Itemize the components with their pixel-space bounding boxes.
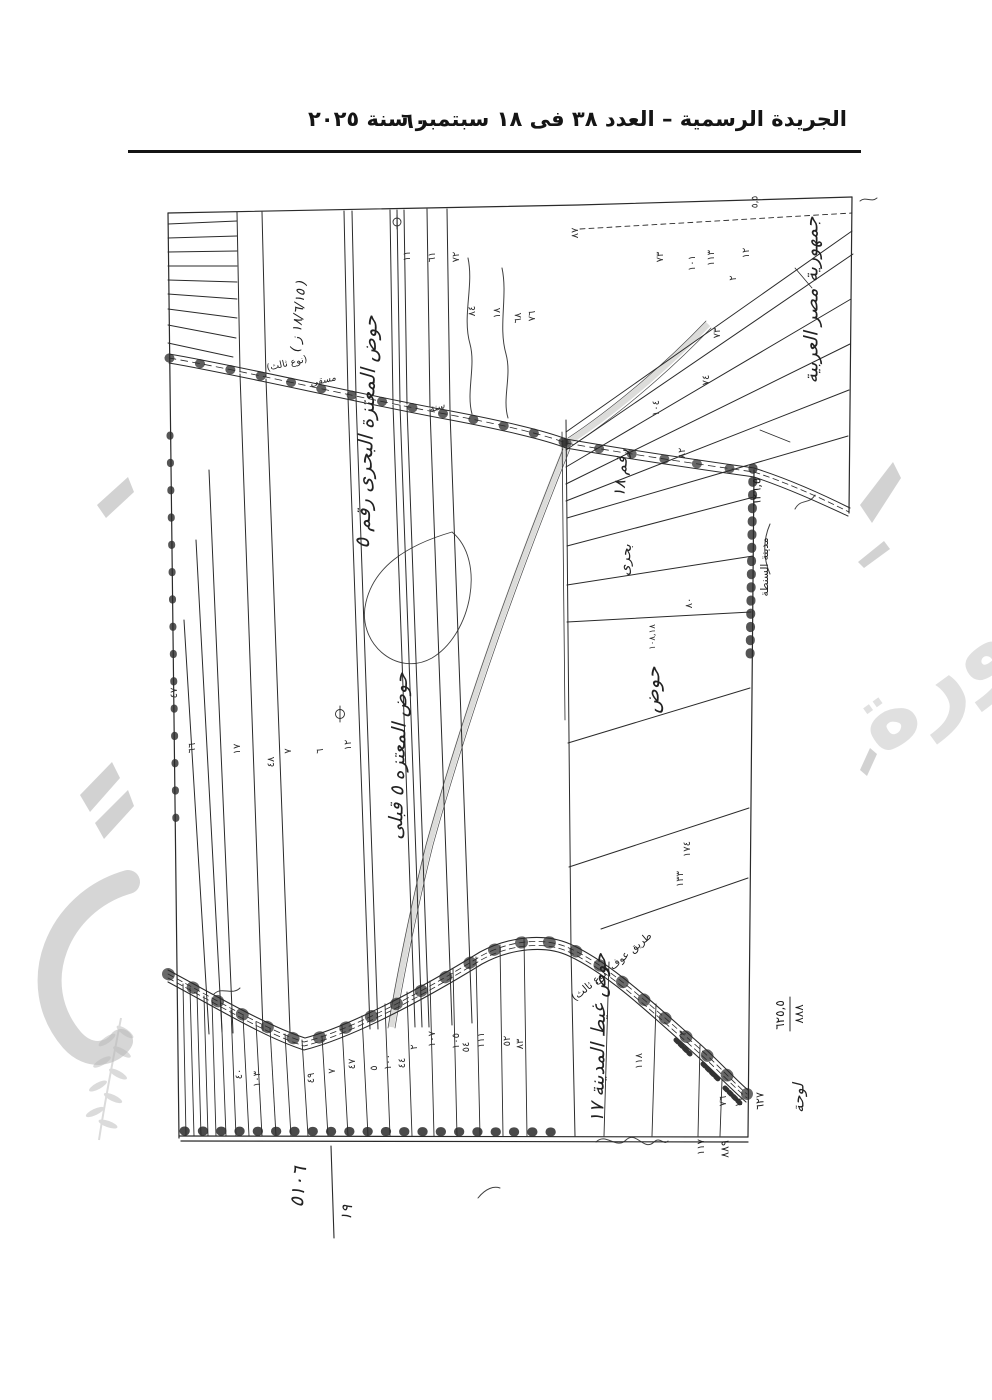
parcel-number: ١٠٨,١٨: [649, 624, 658, 650]
map-label: جمهورية مصر العربية: [803, 216, 822, 383]
map-label: حوض: [641, 666, 663, 714]
map-label: بحرى: [618, 544, 634, 577]
parcel-number: ١١: [735, 1097, 745, 1108]
parcel-number: ٤٩: [307, 1073, 317, 1084]
parcel-number: ١٢: [742, 248, 752, 259]
parcel-number: ٨٢: [678, 448, 688, 459]
map-label: رقم ١٨: [611, 448, 630, 497]
parcel-number: ٦٨: [514, 313, 524, 324]
parcel-number: ٧٦: [528, 311, 538, 322]
parcel-number: ٨٧: [571, 228, 581, 239]
map-label: مسقى: [309, 373, 337, 388]
header-rule: [128, 150, 861, 153]
gazette-header-title: الجريدة الرسمية – العدد ٣٨ فى ١٨ سبتمبر …: [308, 107, 847, 131]
map-label: ٨٨٩: [720, 1140, 731, 1158]
map-annotation-layer: جمهورية مصر العربيةحوض المعتزة البحرى رق…: [0, 0, 992, 1400]
parcel-number: ١٧٤: [683, 841, 693, 857]
parcel-number: ١٧: [233, 744, 243, 755]
parcel-number: ٤٧: [348, 1059, 358, 1070]
parcel-number: ٤٧: [170, 688, 180, 699]
parcel-number: ٧٤: [702, 375, 712, 386]
map-label: حوض المعتزه ٥ قبلى: [387, 672, 412, 840]
parcel-number: ٦٦: [188, 743, 198, 754]
map-label: ١١٧: [697, 1139, 707, 1155]
parcel-number: ١١: [403, 251, 413, 262]
map-label: ٨٨٨: [793, 1004, 805, 1023]
map-label: ٦٢٧: [755, 1092, 766, 1110]
map-label: ٦٢٦,٥: [751, 478, 763, 506]
map-label: مدينة السنطة: [760, 537, 771, 596]
parcel-number: ٧٣: [713, 328, 723, 339]
parcel-number: ٧٦: [719, 1096, 729, 1107]
parcel-number: ٧: [284, 748, 294, 753]
parcel-number: ٤٤: [398, 1058, 408, 1069]
parcel-number: ٨٠: [685, 598, 695, 609]
parcel-number: ٨٤: [468, 306, 478, 317]
parcel-number: ١٠٧: [428, 1031, 438, 1047]
parcel-number: ١٢: [344, 740, 354, 751]
parcel-number: ٧: [328, 1068, 338, 1073]
gazette-page: { "header": { "title": "الجريدة الرسمية …: [0, 0, 992, 1400]
parcel-number: ٤٠: [235, 1069, 245, 1080]
parcel-number: ٦١: [428, 252, 438, 263]
parcel-number: ٧٢: [452, 252, 462, 263]
parcel-number: ١٨: [493, 308, 503, 319]
parcel-number: ٥٢: [503, 1036, 513, 1047]
parcel-number: ٢: [410, 1044, 420, 1049]
parcel-number: ٦: [316, 748, 326, 753]
parcel-number: ٥: [370, 1065, 380, 1070]
parcel-number: ٨٣: [516, 1039, 526, 1050]
parcel-number: ٧٣: [656, 252, 666, 263]
map-label: حوض المعتزة البحرى رقم ٥: [352, 315, 380, 549]
page-number: ٦٠: [401, 109, 427, 133]
map-label: (نوع ثالث): [266, 355, 308, 374]
map-label: ( ١٨/٦/١٥ ز ): [289, 279, 308, 352]
parcel-number: ١١٣: [707, 250, 717, 266]
parcel-number: ٥٤: [462, 1042, 472, 1053]
map-label: ١٩: [339, 1204, 355, 1221]
map-label: سنة: [428, 401, 446, 415]
map-label: لوحة: [792, 1083, 807, 1113]
map-label: ٦٢٥,٥: [774, 1000, 786, 1030]
map-label: طريق عوف (نوع ثالث): [570, 931, 654, 1004]
parcel-number: ١٠٤: [652, 400, 662, 416]
parcel-number: ١٠٠: [384, 1054, 394, 1070]
parcel-number: ٢: [729, 275, 739, 280]
parcel-number: ٤٨: [267, 757, 277, 768]
parcel-number: ١١١: [477, 1032, 487, 1048]
parcel-number: ١١٨: [635, 1053, 645, 1069]
parcel-number: ١٠١: [688, 255, 698, 271]
map-label: ٥,٥: [752, 196, 761, 209]
parcel-number: ١٣٣: [676, 871, 686, 887]
parcel-number: ٣: [679, 1030, 689, 1035]
parcel-number: ١٠٣: [253, 1071, 263, 1087]
map-label: ٥١٠٦: [288, 1166, 310, 1208]
